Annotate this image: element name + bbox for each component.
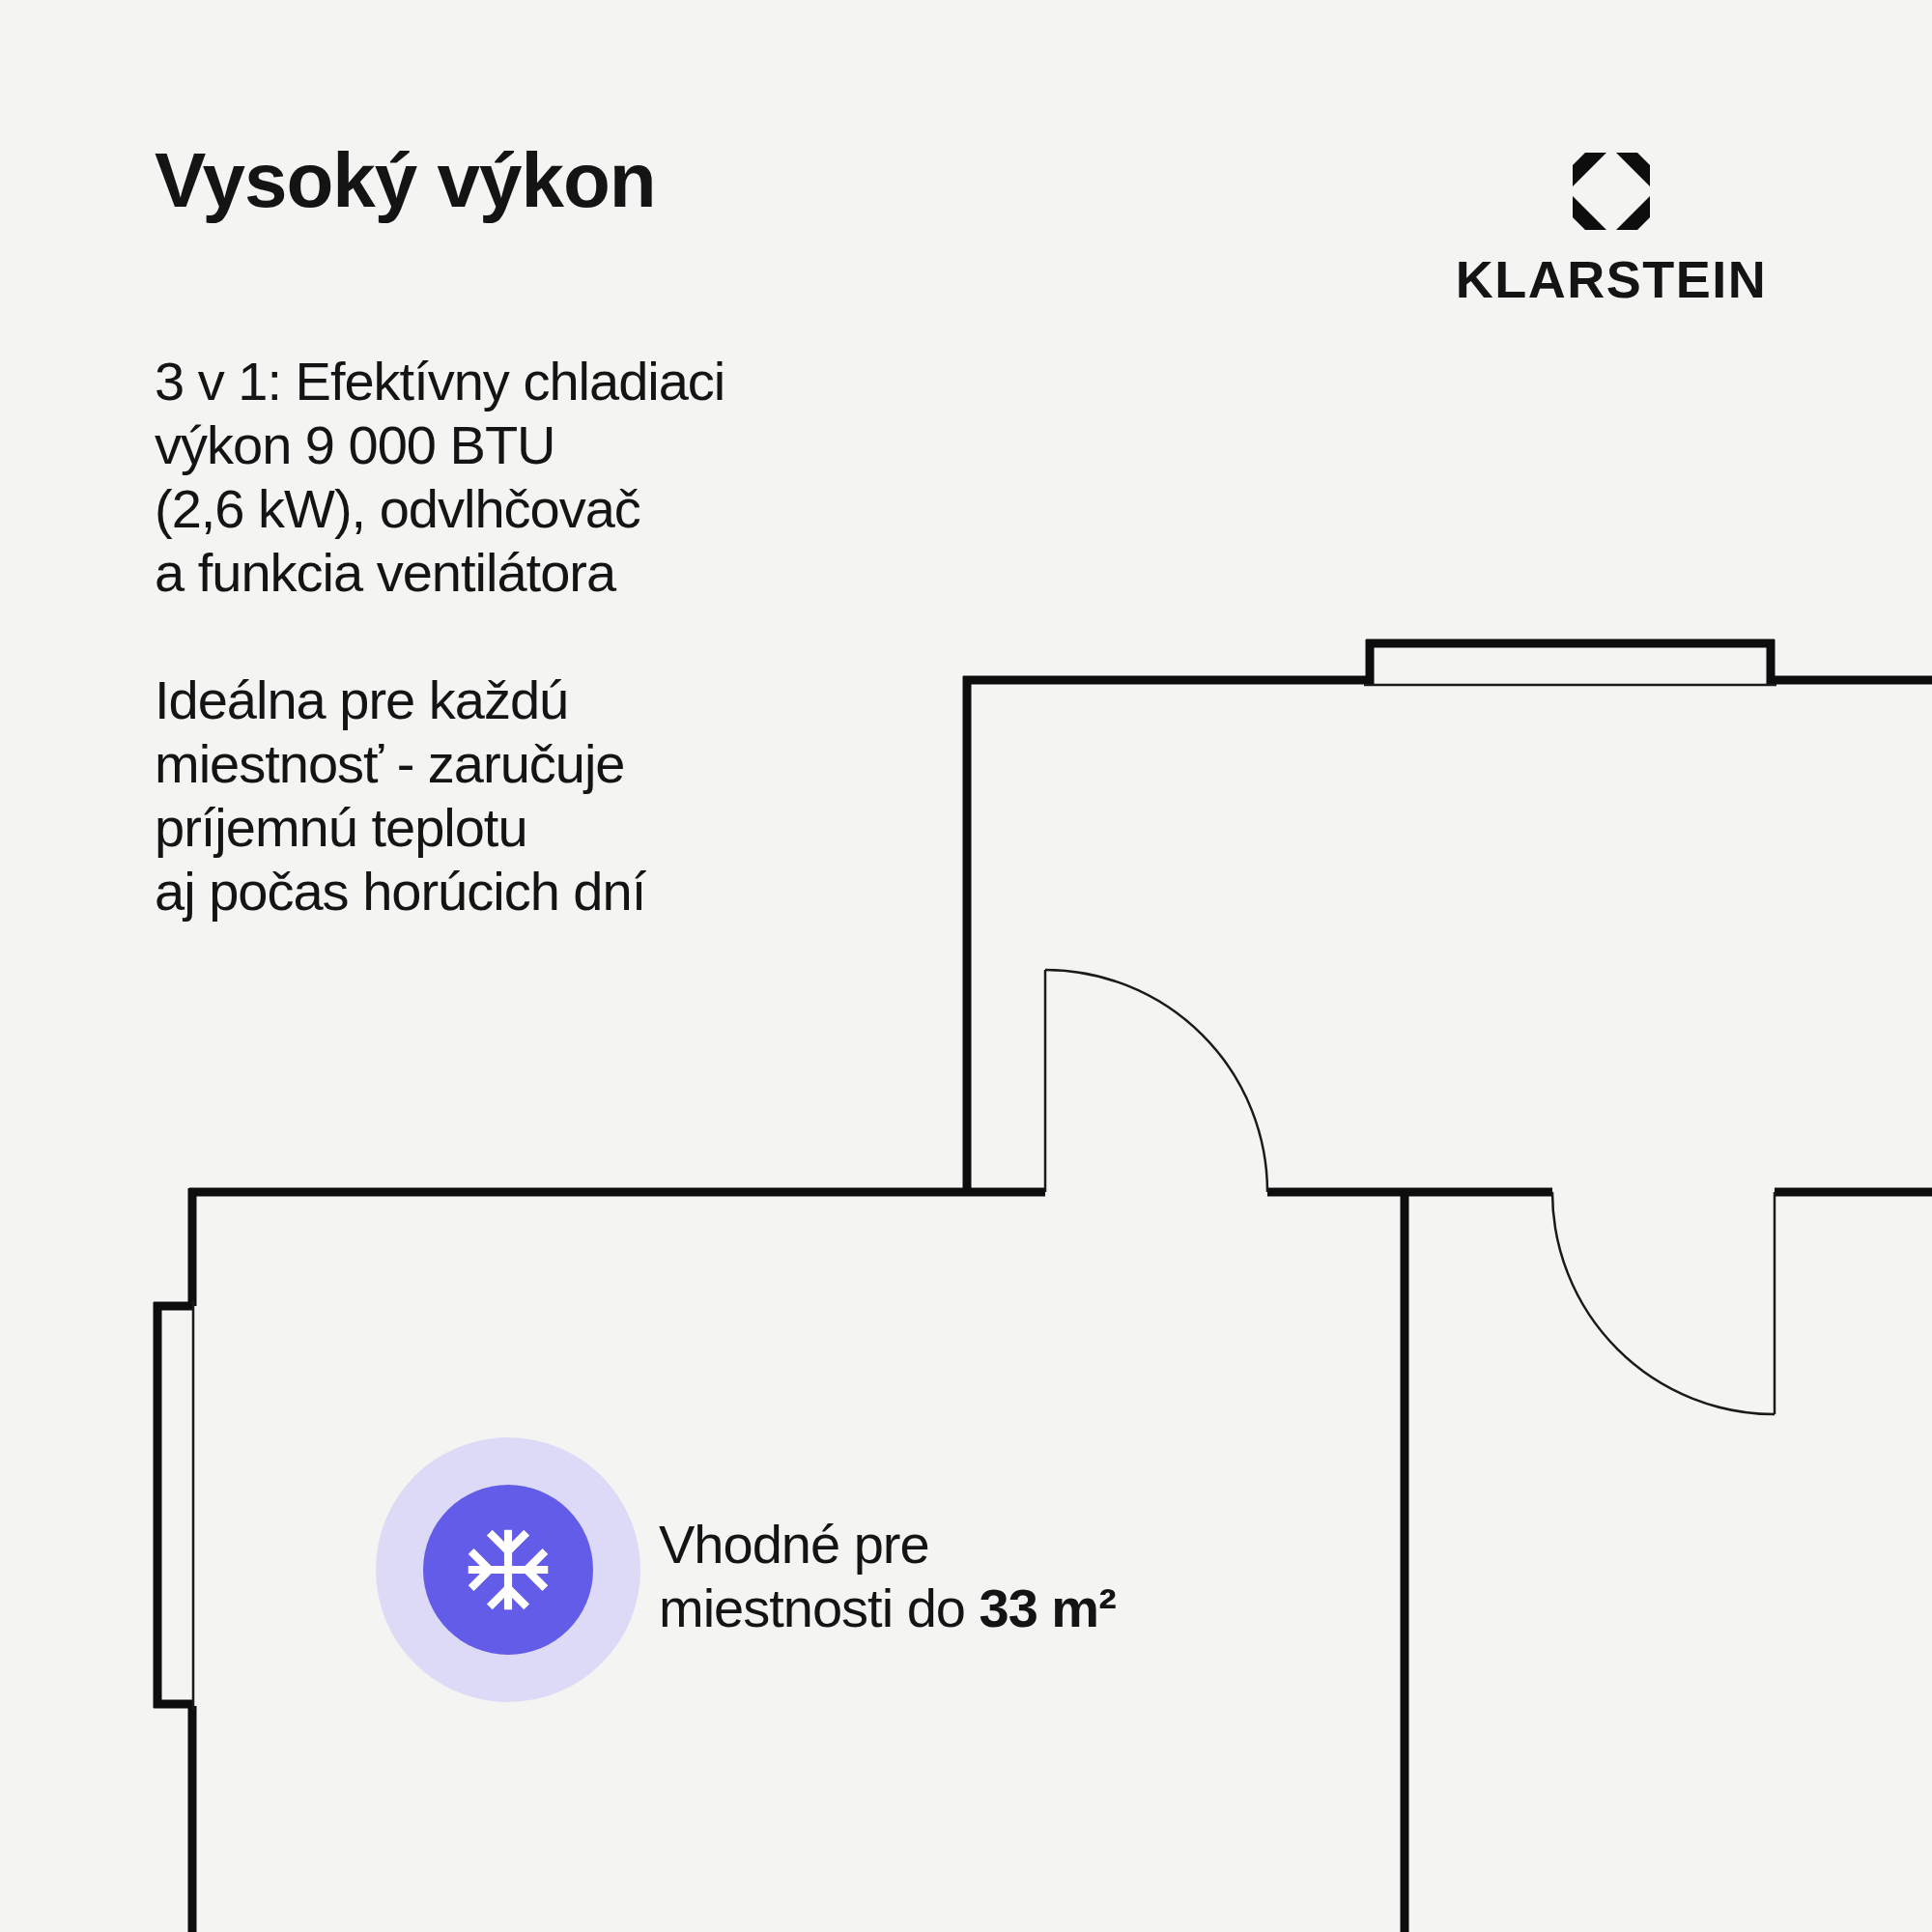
- benefit-line: miestnosť - zaručuje: [155, 732, 645, 796]
- logo-corner-se: [1616, 196, 1650, 230]
- logo-corner-nw: [1573, 153, 1606, 186]
- door-b-swing-arc: [1552, 1192, 1775, 1414]
- intro-line: (2,6 kW), odvlhčovač: [155, 477, 724, 541]
- intro-line: 3 v 1: Efektívny chladiaci: [155, 350, 724, 413]
- infographic-canvas: Vysoký výkon KLARSTEIN 3 v 1: Efektívny …: [0, 0, 1932, 1932]
- snowflake-icon: [462, 1523, 554, 1616]
- door-a-swing-arc: [1045, 970, 1267, 1192]
- room-size-callout: Vhodné pre miestnosti do 33 m²: [659, 1513, 1116, 1640]
- intro-line: a funkcia ventilátora: [155, 541, 724, 605]
- logo-corner-ne: [1616, 153, 1650, 186]
- callout-line-2-regular: miestnosti do: [659, 1577, 980, 1638]
- benefit-line: aj počas horúcich dní: [155, 860, 645, 923]
- intro-line: výkon 9 000 BTU: [155, 413, 724, 477]
- callout-line-1: Vhodné pre: [659, 1513, 1116, 1577]
- snowflake-badge: [423, 1485, 593, 1655]
- callout-line-2: miestnosti do 33 m²: [659, 1577, 1116, 1640]
- brand-block: KLARSTEIN: [1447, 153, 1776, 305]
- brand-wordmark: KLARSTEIN: [1447, 253, 1776, 305]
- logo-corner-sw: [1573, 196, 1606, 230]
- klarstein-logo-icon: [1573, 153, 1650, 230]
- page-title: Vysoký výkon: [155, 142, 656, 219]
- snowflake-badge-ring: [376, 1437, 640, 1702]
- benefit-line: príjemnú teplotu: [155, 796, 645, 860]
- room-size-value: 33 m²: [980, 1577, 1116, 1638]
- intro-paragraph: 3 v 1: Efektívny chladiaci výkon 9 000 B…: [155, 350, 724, 605]
- benefit-paragraph: Ideálna pre každú miestnosť - zaručuje p…: [155, 668, 645, 923]
- benefit-line: Ideálna pre každú: [155, 668, 645, 732]
